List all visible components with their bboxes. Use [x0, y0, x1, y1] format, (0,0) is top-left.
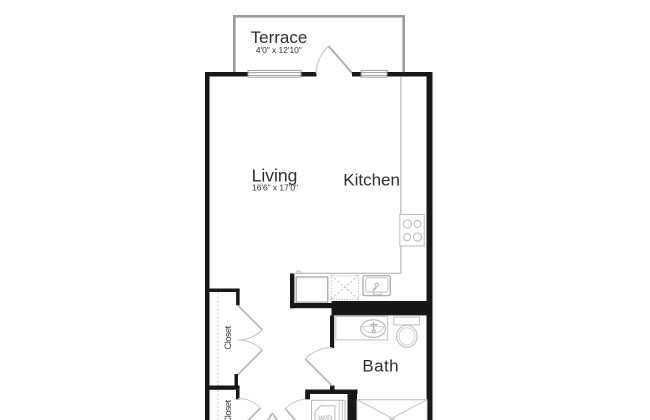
svg-text:W/D: W/D	[318, 413, 332, 420]
svg-text:4'0" x 12'10": 4'0" x 12'10"	[256, 45, 302, 55]
svg-text:16'6" x 17'0": 16'6" x 17'0"	[252, 182, 298, 192]
svg-text:Kitchen: Kitchen	[343, 170, 400, 189]
svg-text:Closet: Closet	[223, 325, 233, 349]
svg-text:Bath: Bath	[362, 357, 399, 376]
svg-text:Closet: Closet	[223, 399, 233, 420]
